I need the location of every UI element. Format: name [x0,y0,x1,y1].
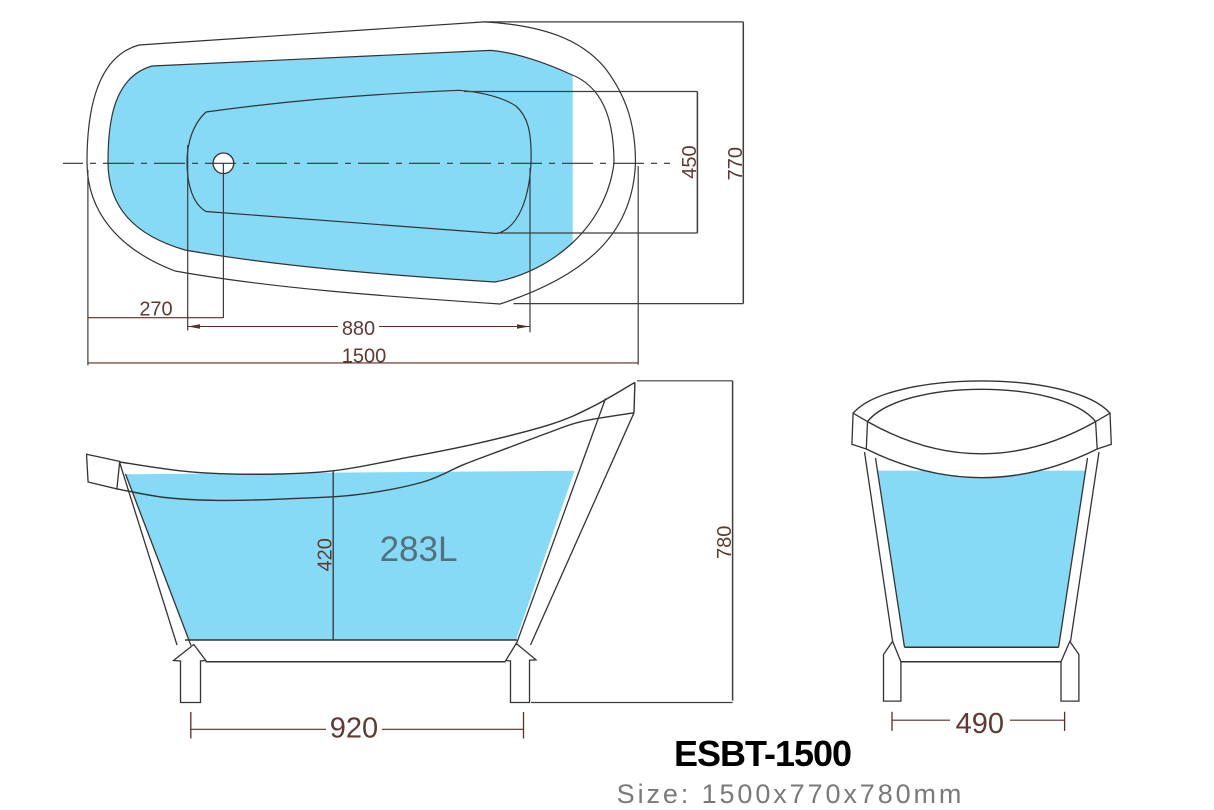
svg-text:420: 420 [315,538,337,571]
svg-text:880: 880 [342,318,375,340]
svg-text:270: 270 [139,299,172,321]
svg-text:1500: 1500 [342,346,387,368]
svg-text:450: 450 [679,145,701,178]
svg-text:283L: 283L [380,530,458,569]
svg-text:Size: 1500x770x780mm: Size: 1500x770x780mm [617,779,965,809]
svg-text:780: 780 [714,526,736,559]
svg-text:490: 490 [956,708,1004,740]
svg-text:ESBT-1500: ESBT-1500 [674,733,851,774]
svg-text:770: 770 [725,147,747,180]
svg-text:920: 920 [330,713,378,745]
